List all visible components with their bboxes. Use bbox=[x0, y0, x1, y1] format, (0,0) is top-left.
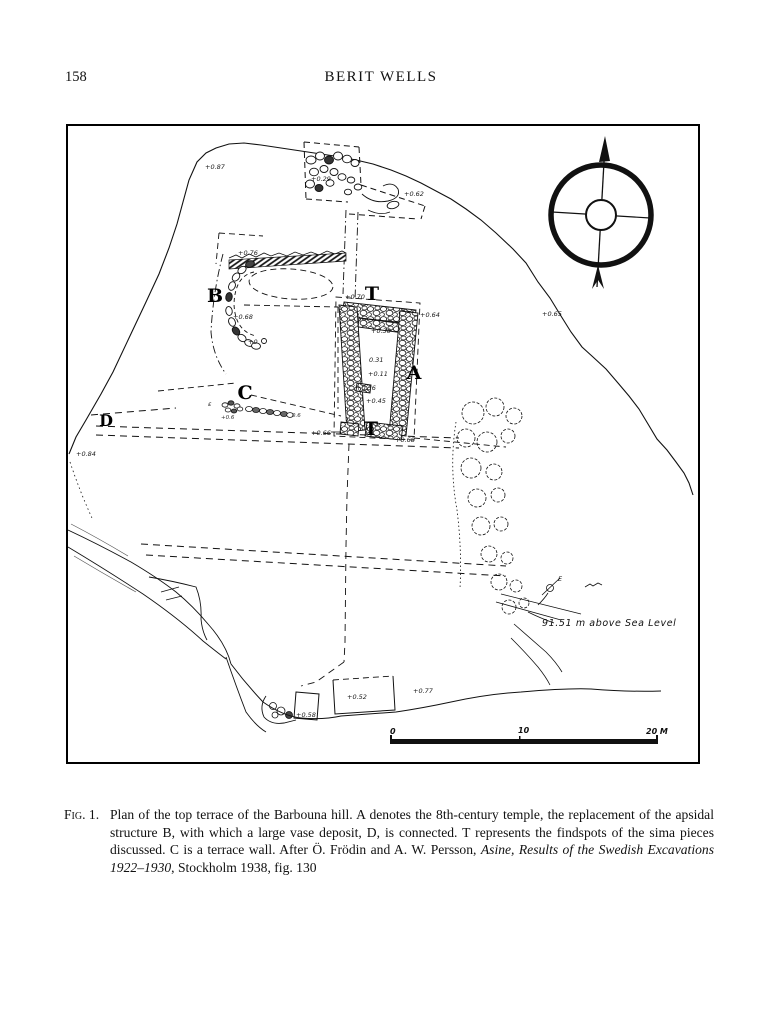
scale-ten: 10 bbox=[518, 726, 530, 735]
epsilon-mark: ε bbox=[208, 400, 212, 408]
scanned-paper-page: 158 BERIT WELLS bbox=[0, 0, 762, 1024]
figure-caption-label: Fig. 1. bbox=[64, 806, 110, 876]
elevation-mark: +0.11 bbox=[368, 370, 388, 378]
figure-caption: Fig. 1. Plan of the top terrace of the B… bbox=[64, 806, 714, 876]
elevation-mark: 0.31 bbox=[369, 356, 383, 364]
elevation-marks: +0.87 +0.29 +0.62 +0.65 +0.76 +0.68 +0 +… bbox=[76, 163, 562, 719]
north-arrow-icon bbox=[599, 136, 610, 162]
caption-roman-2: , Stockholm 1938, fig. 130 bbox=[171, 860, 316, 875]
figure-frame: 0 10 20 M A B C D T T +0.87 +0.29 +0.62 … bbox=[66, 124, 700, 764]
elevation-mark: +0.66 bbox=[311, 429, 331, 437]
elevation-mark: +0.45 bbox=[366, 397, 386, 405]
elevation-mark: +0.65 bbox=[542, 310, 562, 318]
west-slope-gully bbox=[68, 524, 266, 732]
figure-caption-text: Plan of the top terrace of the Barbouna … bbox=[110, 806, 714, 876]
elevation-mark: +0.64 bbox=[420, 311, 440, 319]
elevation-mark: +0.36 bbox=[356, 384, 376, 392]
site-plan-map: 0 10 20 M A B C D T T +0.87 +0.29 +0.62 … bbox=[68, 126, 698, 762]
elevation-mark: +0.30 bbox=[371, 327, 391, 335]
scale-bar: 0 10 20 M bbox=[390, 726, 668, 744]
elevation-mark: +0.6 bbox=[221, 415, 235, 421]
label-findspot-t-top: T bbox=[365, 283, 379, 305]
elevation-mark: +0.68 bbox=[233, 313, 253, 321]
compass-rose bbox=[551, 136, 651, 289]
label-terrace-c: C bbox=[237, 382, 252, 404]
elevation-mark: +0.76 bbox=[238, 249, 258, 257]
elevation-mark: +0.87 bbox=[205, 163, 226, 171]
rock-outcrop bbox=[453, 398, 529, 614]
excavation-trench bbox=[301, 210, 358, 686]
survey-dashed-lines bbox=[91, 408, 506, 576]
elevation-mark: +0.77 bbox=[413, 687, 434, 695]
elevation-mark: 0.6 bbox=[292, 413, 301, 419]
running-head: BERIT WELLS bbox=[0, 69, 762, 86]
label-deposit-d: D bbox=[99, 411, 113, 430]
label-findspot-t-bottom: T bbox=[364, 418, 378, 440]
sea-level-note: 91.51 m above Sea Level bbox=[542, 618, 676, 629]
elevation-mark: +0.58 bbox=[296, 711, 316, 719]
label-temple-a: A bbox=[406, 362, 422, 384]
label-apsidal-b: B bbox=[207, 285, 223, 307]
map-annotations: 91.51 m above Sea Level ε E bbox=[208, 400, 676, 629]
sea-level-area bbox=[496, 578, 602, 685]
elevation-mark: +0.29 bbox=[311, 175, 331, 183]
elevation-mark: +0.84 bbox=[76, 450, 96, 458]
scale-twenty: 20 M bbox=[646, 727, 668, 736]
elevation-mark: +0 bbox=[248, 338, 258, 346]
point-e-mark: E bbox=[558, 575, 563, 583]
elevation-mark: +0.62 bbox=[404, 190, 424, 198]
elevation-mark: +0.52 bbox=[347, 693, 367, 701]
elevation-mark: +0.68 bbox=[395, 436, 415, 444]
elevation-mark: +0.70 bbox=[345, 293, 365, 301]
scale-zero: 0 bbox=[390, 727, 396, 736]
